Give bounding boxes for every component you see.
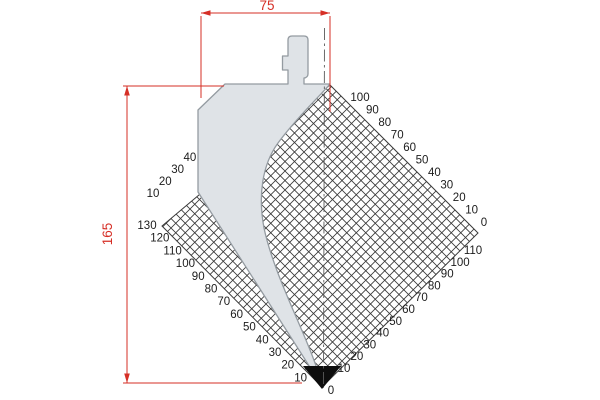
arrow-top <box>124 86 130 96</box>
scale-label: 70 <box>415 292 428 304</box>
scale-label: 50 <box>389 316 402 328</box>
scale-label: 60 <box>403 142 416 154</box>
scale-label: 80 <box>378 117 391 129</box>
scale-label: 10 <box>294 372 307 384</box>
scale-label: 110 <box>464 245 482 257</box>
scale-label: 110 <box>163 245 181 257</box>
arrow-bottom <box>124 374 130 384</box>
scale-label: 30 <box>171 164 184 176</box>
scale-label: 100 <box>350 92 369 104</box>
scale-label: 40 <box>256 334 269 346</box>
scale-label: 40 <box>428 167 441 179</box>
scale-label: 70 <box>217 296 230 308</box>
scale-label: 50 <box>416 155 429 167</box>
scale-label: 90 <box>441 269 454 281</box>
scale-label: 40 <box>184 152 197 164</box>
scale-label: 100 <box>176 258 195 270</box>
scale-label-zero: 0 <box>328 385 334 397</box>
arrow-left <box>201 10 211 16</box>
scale-label: 60 <box>402 304 415 316</box>
width-dimension-label: 75 <box>259 0 274 13</box>
scale-label: 30 <box>440 180 453 192</box>
scale-label: 20 <box>281 360 294 372</box>
scale-label: 10 <box>338 363 351 375</box>
scale-label: 20 <box>453 192 466 204</box>
scale-label: 130 <box>137 220 156 232</box>
scale-label: 30 <box>363 339 376 351</box>
punch-tool-drawing: 75 165 10203040 130120110100908070605040… <box>0 0 600 400</box>
scale-label: 70 <box>391 130 404 142</box>
arrow-right <box>321 10 331 16</box>
scale-label: 100 <box>451 257 470 269</box>
height-dimension-label: 165 <box>100 223 115 246</box>
scale-label: 80 <box>205 284 218 296</box>
scale-label: 10 <box>147 188 160 200</box>
scale-label: 80 <box>428 280 441 292</box>
scale-upper-left: 10203040 <box>147 152 197 200</box>
punch-tip <box>303 366 341 389</box>
scale-label: 40 <box>376 328 389 340</box>
scale-label: 90 <box>366 105 379 117</box>
scale-label: 20 <box>159 176 172 188</box>
technical-drawing-canvas: 75 165 10203040 130120110100908070605040… <box>0 0 600 400</box>
scale-label: 20 <box>351 351 364 363</box>
scale-label: 30 <box>269 347 282 359</box>
scale-label: 0 <box>481 217 487 229</box>
scale-label: 50 <box>243 322 256 334</box>
scale-label: 10 <box>465 205 478 217</box>
scale-label: 60 <box>230 309 243 321</box>
scale-label: 90 <box>192 271 205 283</box>
scale-label: 120 <box>150 233 169 245</box>
scale-tip-zero: 0 <box>328 385 334 397</box>
